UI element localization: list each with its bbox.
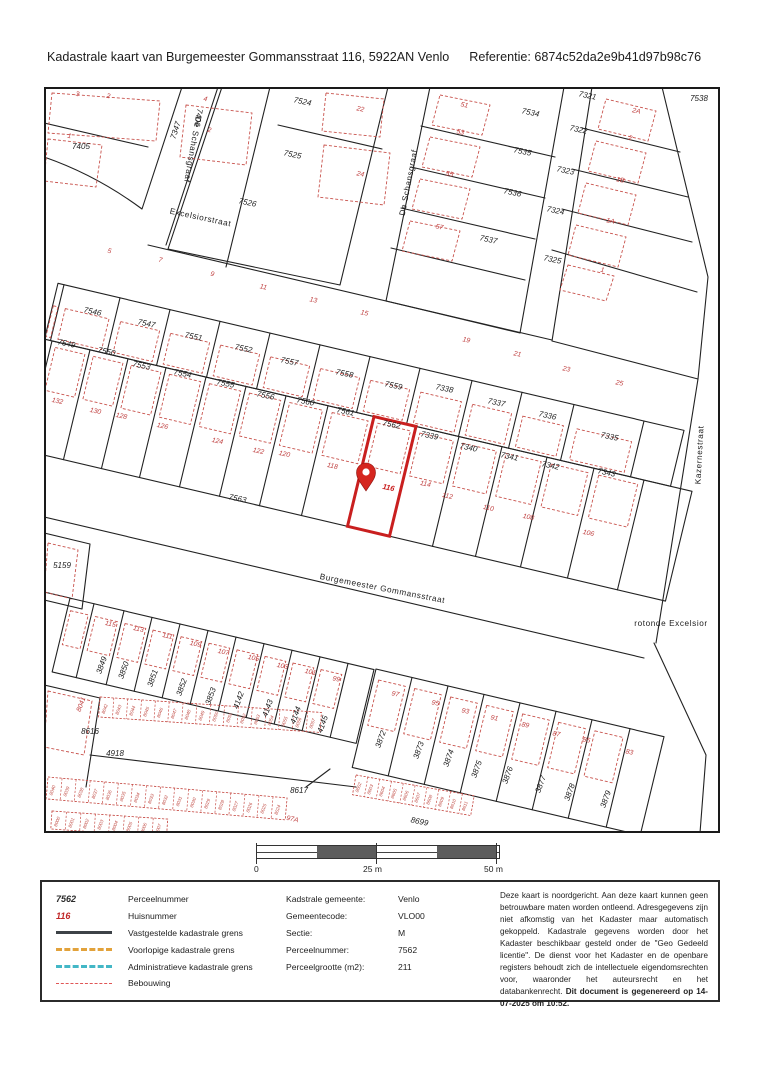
parcel-number-label: 3877: [533, 774, 548, 794]
parcel-number-label: 7562: [382, 418, 402, 431]
house-number-label: 109: [189, 640, 202, 649]
parcel-number-label: 7538: [690, 94, 708, 103]
parcel-number-label: 7341: [500, 450, 519, 463]
legend-row-provisional-boundary: Voorlopige kadastrale grens: [56, 941, 284, 958]
house-number-label: 111: [162, 632, 174, 641]
garage-number: 8038: [77, 787, 85, 799]
sectie-value: M: [398, 928, 405, 938]
parcel-number-label: 3852: [174, 677, 189, 697]
garage-number: 8052: [239, 713, 247, 725]
house-number-label: 113: [132, 625, 144, 634]
garage-number: 8034: [133, 792, 141, 804]
parcel-number-label: 7537: [479, 233, 499, 246]
street-label: rotonde Excelsior: [634, 619, 707, 628]
parcel-number-label: 7336: [538, 409, 558, 422]
parcel-number-label: 4918: [106, 749, 124, 758]
parcel-number-label: 8617: [290, 786, 308, 795]
map-canvas: 8042804380448045804680478048804980508051…: [44, 87, 720, 833]
house-number-label: 128: [115, 412, 128, 421]
garage-number: 8040: [48, 784, 56, 796]
garage-number: 8001: [67, 817, 75, 829]
parcel-number-label: 3876: [500, 765, 515, 785]
parcel-number-label: 3849: [94, 655, 109, 675]
garage-number: 8609: [437, 796, 445, 808]
parcel-number-label: 7556: [256, 389, 276, 402]
parcel-number-label: 7338: [435, 382, 455, 395]
garage-number: 8002: [82, 818, 90, 830]
parcel-number-label: 7337: [487, 396, 507, 409]
street-label: Burgemeester Gommansstraat: [319, 572, 446, 605]
house-number-label: 114: [419, 480, 431, 489]
scale-bar: 0 25 m 50 m: [256, 843, 516, 877]
parcel-number-label: 7343: [597, 466, 617, 479]
house-number-label: 25: [614, 379, 624, 388]
garage-number: 8031: [175, 795, 183, 807]
parcel-number-label: 7321: [578, 89, 597, 102]
gemeentecode-value: VLO00: [398, 911, 425, 921]
house-number-label: 122: [252, 447, 265, 456]
garage-number: 8039: [62, 785, 70, 797]
garage-number: 8604: [378, 785, 386, 797]
parcel-number-label: 7536: [503, 186, 523, 199]
garage-number: 8026: [245, 801, 253, 813]
house-number-label: 2A: [631, 107, 642, 116]
teal-dashed-swatch: [56, 965, 112, 968]
house-number-label: 103: [276, 662, 289, 671]
parcel-number-label: 8616: [81, 727, 99, 736]
garage-number: 8033: [147, 793, 155, 805]
house-number-label: 19: [462, 336, 471, 344]
page-header: Kadastrale kaart van Burgemeester Gomman…: [47, 50, 701, 64]
parcel-number-label: 7335: [600, 430, 620, 443]
legend-row-house: 116 Huisnummer: [56, 908, 284, 925]
house-number-label: 1A: [606, 217, 616, 226]
parcel-number-label: 7546: [83, 305, 103, 318]
house-number-label: 2: [105, 93, 111, 101]
garage-number: 8027: [231, 800, 239, 812]
house-number-label: 130: [89, 407, 102, 416]
house-number-label: 112: [441, 492, 453, 501]
parcel-number-label: 4145: [315, 714, 330, 734]
parcel-number-label: 7559: [384, 379, 404, 392]
parcel-number-label: 7555: [216, 377, 236, 390]
parcel-number-label: 3851: [145, 668, 160, 688]
house-number-label: 105: [247, 654, 260, 663]
garage-number: 8024: [273, 804, 281, 816]
house-number-label: 108: [522, 513, 535, 522]
house-number-label: 11: [259, 283, 268, 291]
parcel-number-label: 7406: [192, 108, 204, 128]
house-number-label: 101: [304, 668, 317, 677]
garage-number: 8606: [402, 790, 410, 802]
map-legend: 7562 Perceelnummer 116 Huisnummer Vastge…: [56, 891, 284, 992]
garage-number: 8608: [425, 794, 433, 806]
house-number-label: 107: [217, 648, 230, 657]
house-number-label: 97A: [286, 815, 300, 824]
house-number-label: 93: [461, 707, 470, 715]
parcel-number-label: 7547: [137, 317, 157, 330]
house-number-label: 55: [445, 170, 454, 178]
garage-number: 8005: [125, 821, 133, 833]
street-label: Kazernestraat: [693, 425, 705, 484]
house-number-label: 5: [107, 248, 112, 256]
cadastral-map-sheet: Kadastrale kaart van Burgemeester Gomman…: [0, 0, 763, 1080]
house-number-label: 21: [512, 350, 522, 359]
garage-number: 8000: [53, 816, 61, 828]
garage-number: 8044: [128, 705, 136, 717]
red-dashed-swatch: [56, 983, 112, 984]
selected-house-number: 116: [382, 482, 396, 493]
parcel-number-label: 7340: [459, 441, 479, 454]
house-number-label: 106: [582, 529, 595, 538]
parcel-number-label: 7535: [513, 145, 533, 158]
garage-number: 8042: [101, 703, 109, 715]
house-number-label: 9: [210, 271, 215, 279]
street-label: De Schansgraaf: [398, 149, 420, 217]
garage-number: 8037: [91, 788, 99, 800]
garage-number: 8050: [211, 711, 219, 723]
scale-label-0: 0: [254, 864, 259, 874]
parcel-number-label: 3853: [203, 686, 218, 706]
legend-house-example: 116: [56, 911, 128, 921]
house-number-label: 89: [521, 721, 530, 729]
house-number-label: 97: [391, 690, 400, 698]
house-number-label: 95: [431, 699, 440, 707]
house-number-label: 1: [67, 133, 72, 141]
house-number-label: 83: [625, 748, 634, 756]
parcel-number-label: 4142: [231, 690, 246, 710]
house-number-label: 57: [435, 223, 444, 231]
legend-panel: 7562 Perceelnummer 116 Huisnummer Vastge…: [40, 880, 720, 1002]
parcel-info: Kadstrale gemeente:Venlo Gemeentecode:VL…: [286, 891, 498, 975]
parcel-number-label: 7525: [283, 148, 303, 161]
parcel-number-label: 7405: [72, 142, 90, 151]
house-number-label: 99: [332, 675, 341, 683]
garage-number: 8029: [203, 798, 211, 810]
scale-label-25: 25 m: [363, 864, 382, 874]
house-number-label: 1B: [616, 176, 626, 185]
garage-number: 8057: [308, 717, 316, 729]
solid-boundary-swatch: [56, 931, 112, 934]
house-number-label: 51: [460, 101, 469, 109]
parcel-number-label: 7550: [97, 345, 117, 358]
parcel-number-label: 7524: [293, 95, 313, 108]
parcel-number-label: 3850: [116, 660, 131, 680]
gemeente-value: Venlo: [398, 894, 420, 904]
garage-number: 8610: [449, 798, 457, 810]
garage-number: 8602: [354, 781, 362, 793]
location-pin-icon: [357, 463, 376, 491]
garage-number: 8004: [111, 820, 119, 832]
parcel-number-label: 3875: [469, 759, 484, 779]
garage-number: 8049: [197, 710, 205, 722]
house-number-label: 4: [203, 96, 208, 104]
parcel-number-label: 8699: [410, 815, 430, 828]
garage-number: 8036: [105, 789, 113, 801]
house-number-label: 87: [552, 730, 561, 738]
parcel-number-label: 3872: [373, 729, 388, 749]
house-number-label: 8041: [76, 696, 88, 713]
house-number-label: 2: [627, 135, 633, 143]
garage-number: 8046: [156, 707, 164, 719]
parcel-number-label: 7563: [228, 492, 248, 505]
garage-number: 8043: [114, 704, 122, 716]
garage-number: 8048: [184, 709, 192, 721]
parcel-number-label: 7534: [521, 106, 541, 119]
reference-number: Referentie: 6874c52da2e9b41d97b98c76: [469, 50, 701, 64]
house-number-label: 124: [211, 437, 224, 446]
garage-number: 8030: [189, 796, 197, 808]
house-number-label: 2: [206, 127, 212, 135]
legend-row-fixed-boundary: Vastgestelde kadastrale grens: [56, 925, 284, 942]
page-title: Kadastrale kaart van Burgemeester Gomman…: [47, 50, 449, 64]
perceelgrootte-value: 211: [398, 962, 412, 972]
parcel-number-label: 3873: [411, 740, 426, 760]
parcel-number-label: 3874: [441, 748, 456, 768]
legend-row-parcel: 7562 Perceelnummer: [56, 891, 284, 908]
parcel-number-label: 7558: [335, 367, 355, 380]
parcel-number-label: 7551: [184, 330, 203, 343]
parcel-number-label: 7557: [280, 355, 300, 368]
parcel-number-label: 7560: [296, 395, 316, 408]
parcel-number-label: 5159: [53, 561, 71, 570]
parcel-number-label: 7323: [556, 164, 576, 177]
legend-parcel-example: 7562: [56, 894, 128, 904]
house-number-label: 23: [561, 365, 571, 374]
scale-bar-graphic: [256, 845, 500, 859]
house-number-label: 132: [51, 397, 64, 406]
house-number-label: 115: [104, 620, 116, 629]
house-number-label: 22: [355, 105, 365, 114]
house-number-label: 126: [156, 422, 169, 431]
cadastral-map: 8042804380448045804680478048804980508051…: [44, 87, 720, 833]
house-number-label: 120: [278, 450, 291, 459]
parcel-number-label: 7325: [543, 253, 563, 266]
legend-row-administrative-boundary: Administratieve kadastrale grens: [56, 958, 284, 975]
parcel-number-label: 7553: [132, 359, 152, 372]
house-number-label: 110: [482, 504, 494, 513]
parcel-number-label: 7549: [57, 337, 77, 350]
scale-label-50: 50 m: [484, 864, 503, 874]
orange-dashed-swatch: [56, 948, 112, 951]
house-number-label: 7: [158, 257, 163, 265]
parcel-number-label: 7552: [234, 342, 254, 355]
garage-number: 8028: [217, 799, 225, 811]
legend-row-building: Bebouwing: [56, 975, 284, 992]
garage-number: 8611: [461, 800, 469, 811]
garage-number: 8607: [413, 792, 421, 804]
garage-number: 8047: [170, 708, 178, 720]
house-number-label: 91: [490, 714, 499, 722]
house-number-label: 13: [309, 296, 318, 304]
house-number-label: 24: [355, 170, 365, 179]
house-number-label: 15: [360, 309, 369, 317]
garage-number: 8003: [96, 819, 104, 831]
disclaimer: Deze kaart is noordgericht. Aan deze kaa…: [500, 890, 708, 1010]
parcel-number-label: 7554: [173, 367, 193, 380]
perceelnummer-value: 7562: [398, 945, 417, 955]
house-number-label: 118: [326, 462, 338, 471]
garage-number: 8603: [366, 783, 374, 795]
garage-number: 8032: [161, 794, 169, 806]
parcel-number-label: 7324: [546, 204, 566, 217]
garage-number: 8605: [390, 788, 398, 800]
house-number-label: 3: [75, 91, 80, 99]
garage-number: 8045: [142, 706, 150, 718]
house-number-label: 85: [582, 736, 591, 744]
parcel-number-label: 4143: [260, 698, 275, 718]
garage-number: 8025: [259, 803, 267, 815]
garage-number: 8035: [119, 790, 127, 802]
